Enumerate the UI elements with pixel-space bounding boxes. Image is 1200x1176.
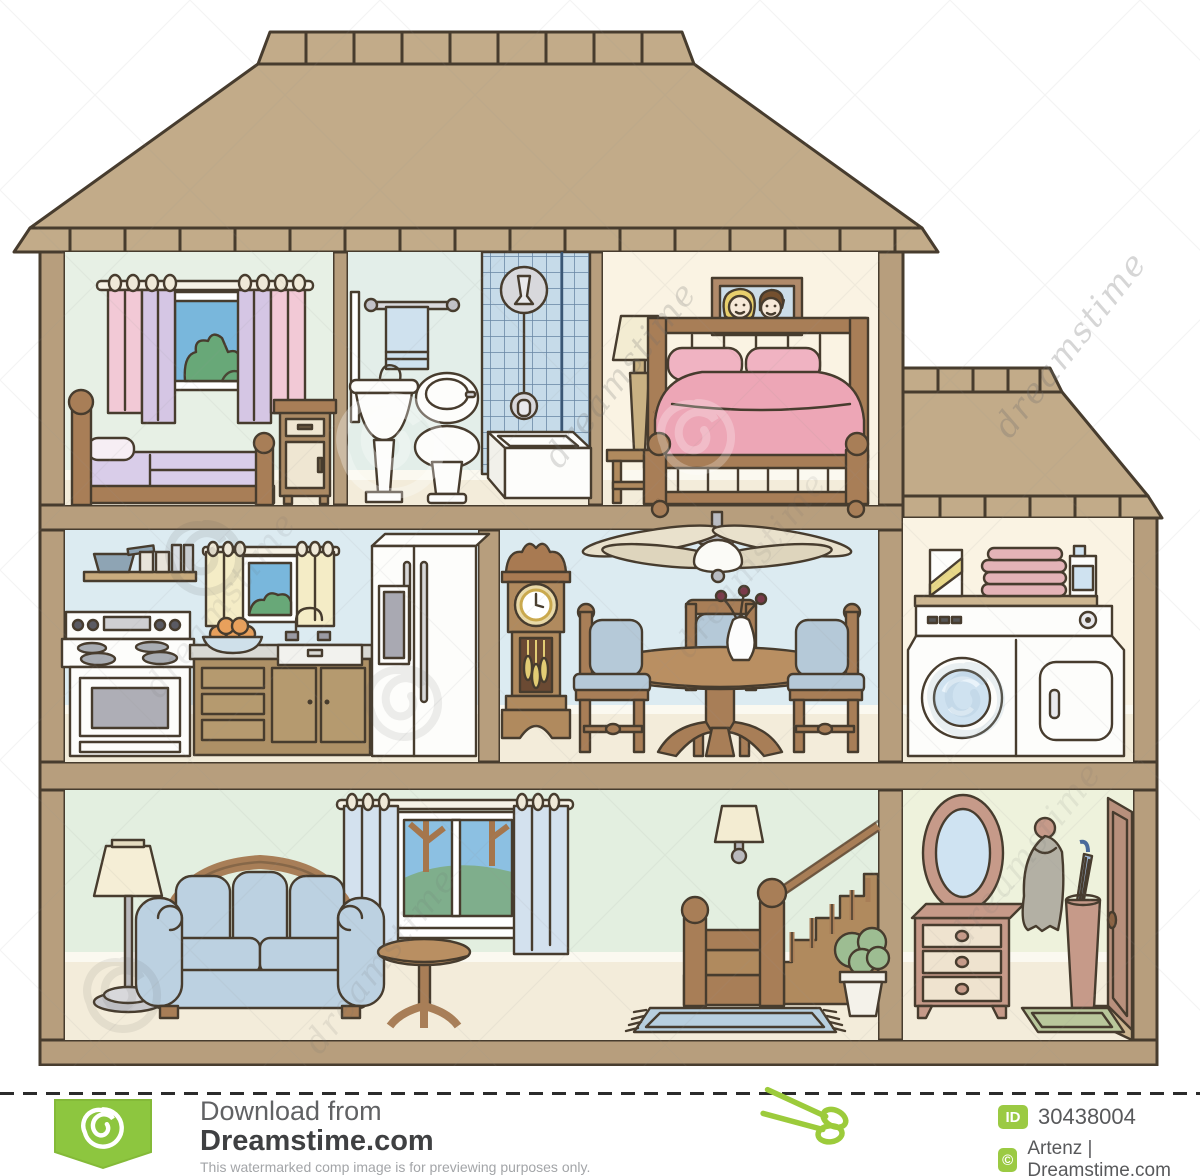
author-credit: Artenz | Dreamstime.com <box>1027 1138 1200 1176</box>
download-from-label: Download from <box>200 1096 382 1127</box>
dreamstime-footer: Download from Dreamstime.com This waterm… <box>0 1066 1200 1176</box>
scissors-icon <box>758 1072 854 1158</box>
watermark-layer: dreamstime dreamstime dreamstime dreamst… <box>0 0 1200 1066</box>
image-id-value: 30438004 <box>1038 1104 1136 1130</box>
site-name: Dreamstime.com <box>200 1125 434 1158</box>
house-cross-section-illustration: dreamstime dreamstime dreamstime dreamst… <box>0 0 1200 1066</box>
stock-image-preview: dreamstime dreamstime dreamstime dreamst… <box>0 0 1200 1176</box>
dreamstime-logo-badge <box>55 1100 151 1168</box>
disclaimer-text: This watermarked comp image is for previ… <box>200 1159 590 1175</box>
credit-row: © Artenz | Dreamstime.com <box>998 1138 1200 1176</box>
image-id-row: ID 30438004 <box>998 1104 1136 1130</box>
id-badge-icon: ID <box>998 1105 1028 1129</box>
copyright-badge-icon: © <box>998 1148 1017 1172</box>
